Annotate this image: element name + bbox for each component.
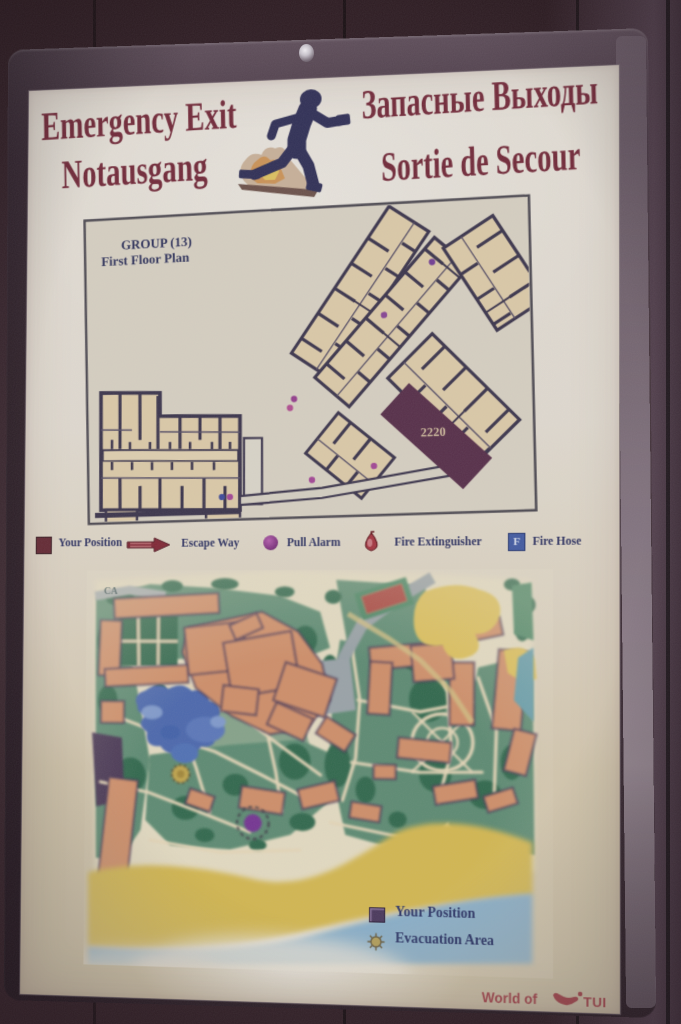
svg-text:2220: 2220 [420, 424, 446, 440]
